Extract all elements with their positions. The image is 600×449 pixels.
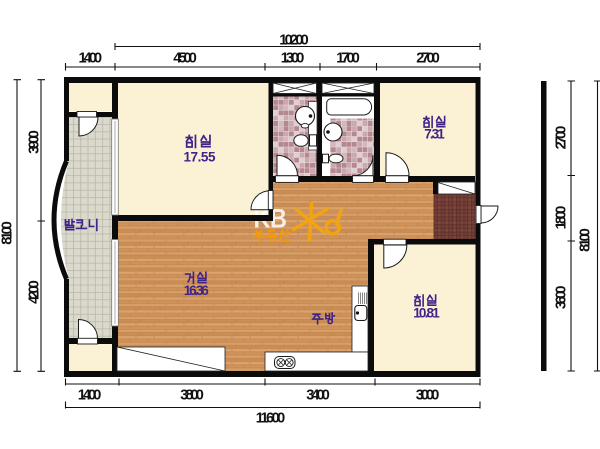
svg-text:8100: 8100 bbox=[578, 228, 594, 252]
svg-text:11600: 11600 bbox=[256, 410, 286, 426]
svg-text:17.55: 17.55 bbox=[184, 149, 216, 164]
svg-text:2700: 2700 bbox=[554, 126, 570, 150]
svg-text:1400: 1400 bbox=[78, 387, 102, 403]
svg-text:4500: 4500 bbox=[173, 50, 197, 66]
svg-text:2700: 2700 bbox=[416, 50, 440, 66]
svg-text:1800: 1800 bbox=[554, 206, 570, 230]
svg-text:3400: 3400 bbox=[306, 387, 330, 403]
svg-text:3900: 3900 bbox=[27, 130, 43, 154]
svg-text:1700: 1700 bbox=[336, 50, 360, 66]
svg-text:10.81: 10.81 bbox=[413, 305, 440, 320]
svg-text:7.31: 7.31 bbox=[424, 126, 445, 141]
svg-text:1300: 1300 bbox=[281, 50, 305, 66]
svg-text:1400: 1400 bbox=[79, 50, 103, 66]
svg-text:10200: 10200 bbox=[279, 33, 309, 49]
svg-text:3800: 3800 bbox=[180, 387, 204, 403]
svg-text:3600: 3600 bbox=[554, 286, 570, 310]
svg-text:3000: 3000 bbox=[416, 387, 440, 403]
svg-text:16.36: 16.36 bbox=[184, 283, 209, 298]
svg-text:8100: 8100 bbox=[0, 221, 16, 245]
svg-text:4200: 4200 bbox=[27, 280, 43, 304]
